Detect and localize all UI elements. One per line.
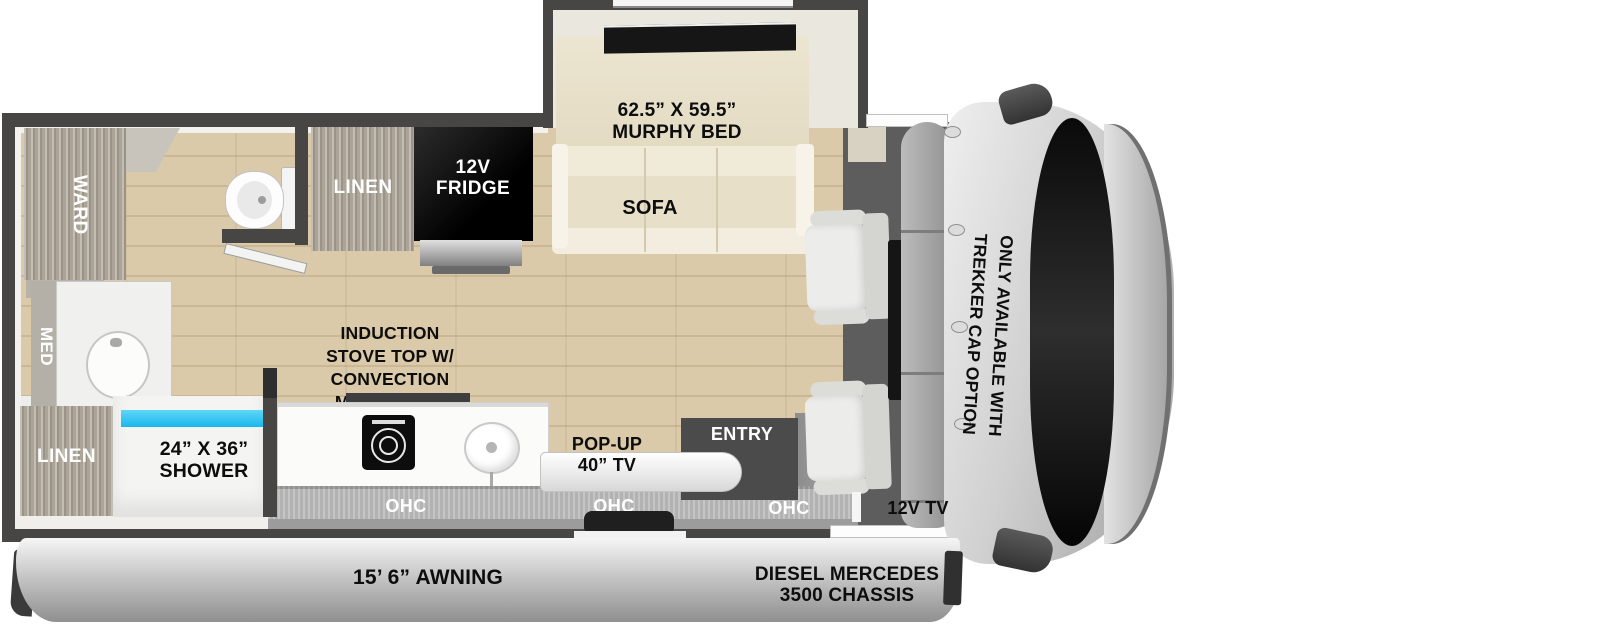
shower-label-line1: 24” X 36” [128, 438, 280, 460]
bathroom-wall-stub [222, 229, 308, 243]
linen-bath-label: LINEN [20, 446, 113, 467]
toilet-bowl-inner [237, 181, 272, 219]
stove-slot [372, 420, 405, 424]
ohc-label-right: OHC [754, 498, 824, 518]
fridge-foot [432, 266, 510, 274]
front-bumper [1104, 124, 1172, 544]
shower-wall-cap [263, 368, 277, 398]
shower-label: 24” X 36” SHOWER [128, 438, 280, 482]
passenger-seat [804, 379, 896, 495]
ohc-label-left: OHC [371, 496, 441, 516]
chassis-label-line1: DIESEL MERCEDES [747, 564, 947, 585]
cab-divider-tick [852, 492, 861, 522]
slideout-tv-panel [604, 22, 796, 53]
entry-step [584, 511, 674, 532]
ward-label: WARD [62, 146, 90, 264]
sofa-seam [716, 148, 718, 252]
seat-back [862, 384, 892, 490]
murphy-bed-size-text: 62.5” X 59.5” [577, 100, 777, 122]
vanity-faucet [110, 338, 122, 347]
entry-label: ENTRY [702, 424, 782, 444]
stove-label-line2: STOVE TOP W/ [295, 345, 485, 368]
rv-floorplan: 62.5” X 59.5” MURPHY BED SOFA LINEN 12V … [0, 0, 1600, 638]
sofa-label: SOFA [600, 197, 700, 220]
sofa-front [552, 228, 814, 254]
stove-label-line1: INDUCTION [295, 322, 485, 345]
fridge-base [420, 240, 522, 266]
fridge-label-line2: FRIDGE [419, 178, 527, 199]
fridge-label: 12V FRIDGE [419, 157, 527, 200]
bottom-liner-bath [15, 515, 270, 529]
toilet-flush [258, 196, 266, 204]
murphy-bed-label: 62.5” X 59.5” MURPHY BED [577, 100, 777, 143]
sofa-arm-left [552, 144, 568, 248]
sink-faucet [486, 442, 497, 453]
sofa-back [552, 146, 814, 178]
windshield [1030, 118, 1114, 546]
bathroom-right-wall [295, 121, 308, 245]
shower-label-line2: SHOWER [128, 460, 280, 482]
chassis-label-line2: 3500 CHASSIS [747, 585, 947, 606]
seat-cushion [805, 223, 870, 311]
murphy-bed-text: MURPHY BED [577, 122, 777, 144]
cab-tv-label: 12V TV [877, 498, 959, 519]
cap-latch-dot [944, 126, 961, 138]
chassis-label: DIESEL MERCEDES 3500 CHASSIS [747, 564, 947, 606]
linen-kitchen-label: LINEN [313, 177, 413, 198]
med-label: MED [31, 314, 56, 378]
stove-label-line3: CONVECTION [295, 368, 485, 391]
top-wall [2, 113, 551, 127]
seat-cushion [805, 394, 870, 481]
left-wall [2, 113, 15, 537]
burner-inner-ring [379, 436, 398, 455]
induction-stove [362, 415, 415, 470]
popup-tv-label-line1: POP-UP [552, 434, 662, 455]
driver-seat [804, 208, 896, 325]
fridge-label-line1: 12V [419, 157, 527, 178]
slideout-window [613, 0, 793, 8]
shower-water-edge [121, 410, 267, 427]
popup-tv-label: POP-UP 40” TV [552, 434, 662, 475]
awning-label: 15’ 6” AWNING [328, 566, 528, 590]
popup-tv-label-line2: 40” TV [552, 455, 662, 476]
